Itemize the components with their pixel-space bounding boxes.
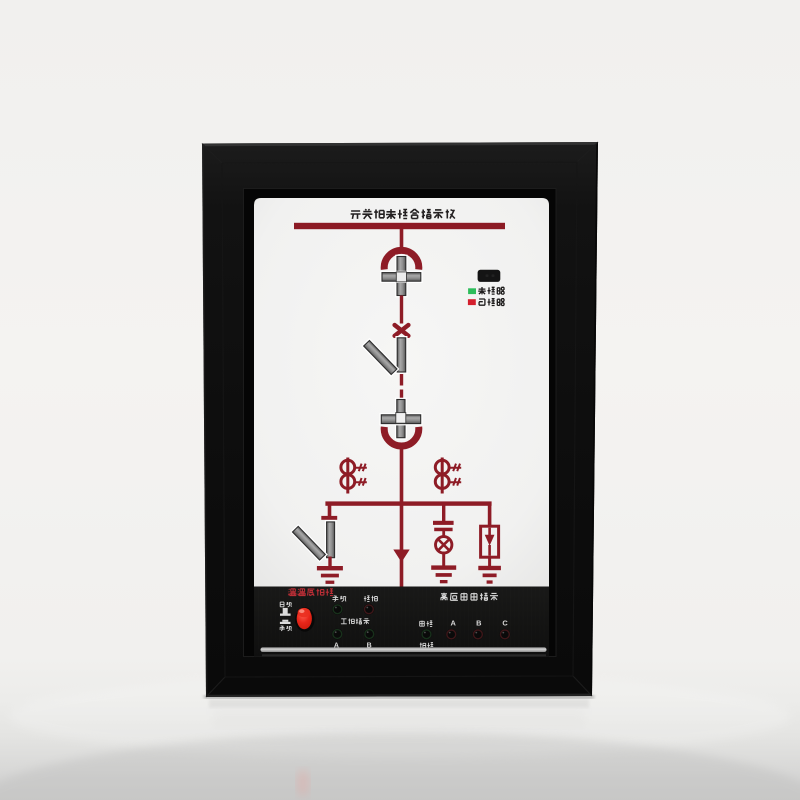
- svg-text:B: B: [476, 619, 481, 628]
- svg-text:C: C: [502, 619, 508, 628]
- svg-text:A: A: [451, 619, 457, 628]
